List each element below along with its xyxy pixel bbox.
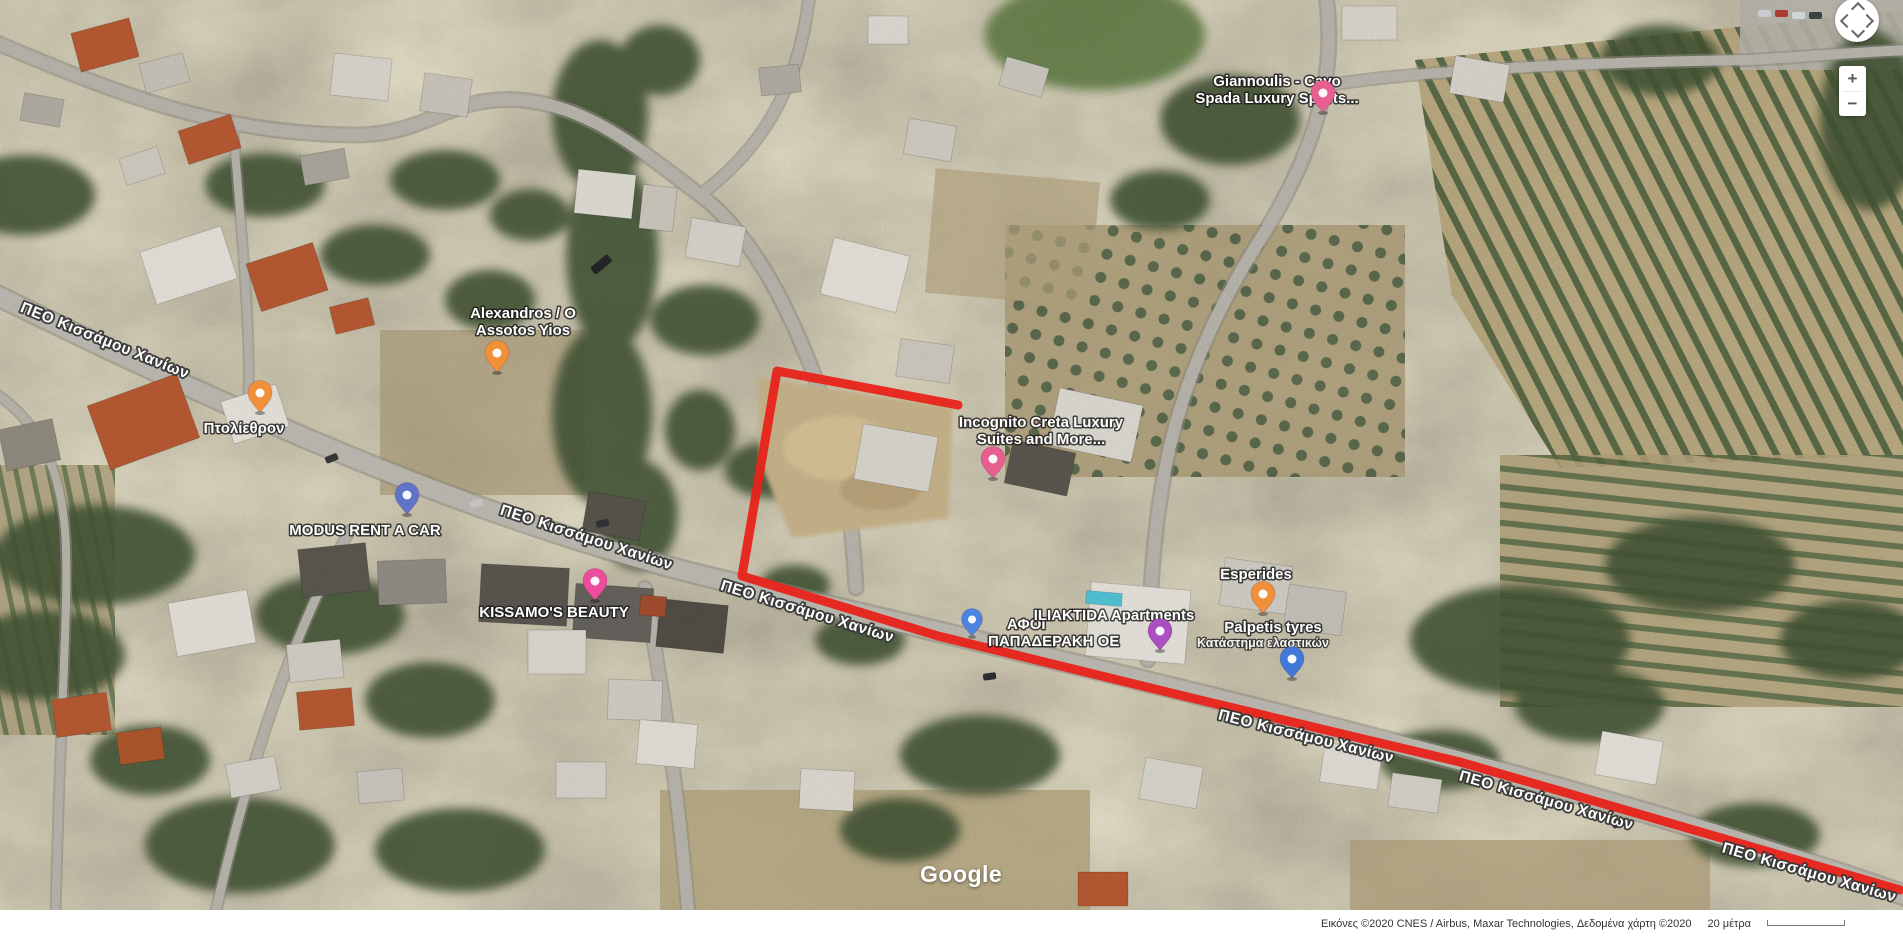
noise-overlay-light <box>0 0 1903 910</box>
scale-bar <box>1767 920 1845 926</box>
pan-right-icon[interactable] <box>1860 14 1874 28</box>
pan-control[interactable] <box>1835 0 1879 42</box>
place-label[interactable]: Πτολίεθρον <box>204 420 285 437</box>
scale-label: 20 μέτρα <box>1708 918 1752 930</box>
pan-left-icon[interactable] <box>1840 14 1854 28</box>
attribution-bar: Εικόνες ©2020 CNES / Airbus, Maxar Techn… <box>0 910 1903 938</box>
place-label[interactable]: MODUS RENT A CAR <box>289 522 441 539</box>
place-label[interactable]: Incognito Creta Luxury <box>959 414 1124 431</box>
zoom-in-button[interactable]: + <box>1839 66 1866 91</box>
pan-down-icon[interactable] <box>1851 24 1865 38</box>
place-label[interactable]: Esperides <box>1220 566 1292 583</box>
place-label[interactable]: Assotos Yios <box>476 322 570 339</box>
pan-up-icon[interactable] <box>1851 2 1865 16</box>
place-sublabel[interactable]: Κατάστημα ελαστικών <box>1197 636 1329 650</box>
attribution-text: Εικόνες ©2020 CNES / Airbus, Maxar Techn… <box>1321 918 1692 930</box>
satellite-map[interactable]: ΠΕΟ Κισσάμου Χανίων ΠΕΟ Κισσάμου Χανίων … <box>0 0 1903 938</box>
place-label[interactable]: Palpetis tyres <box>1224 619 1322 636</box>
place-label[interactable]: ΠΑΠΑΔΕΡΑΚΗ ΟΕ <box>988 633 1119 650</box>
map-canvas[interactable]: ΠΕΟ Κισσάμου Χανίων ΠΕΟ Κισσάμου Χανίων … <box>0 0 1903 938</box>
place-label[interactable]: Suites and More... <box>977 431 1105 448</box>
place-label[interactable]: ILIAKTIDA Apartments <box>1034 607 1195 624</box>
google-logo[interactable]: Google <box>920 861 1002 888</box>
place-label[interactable]: Alexandros / O <box>470 305 576 322</box>
place-label[interactable]: KISSAMO'S BEAUTY <box>479 604 628 621</box>
zoom-control[interactable]: + − <box>1839 66 1866 116</box>
zoom-out-button[interactable]: − <box>1839 92 1866 117</box>
